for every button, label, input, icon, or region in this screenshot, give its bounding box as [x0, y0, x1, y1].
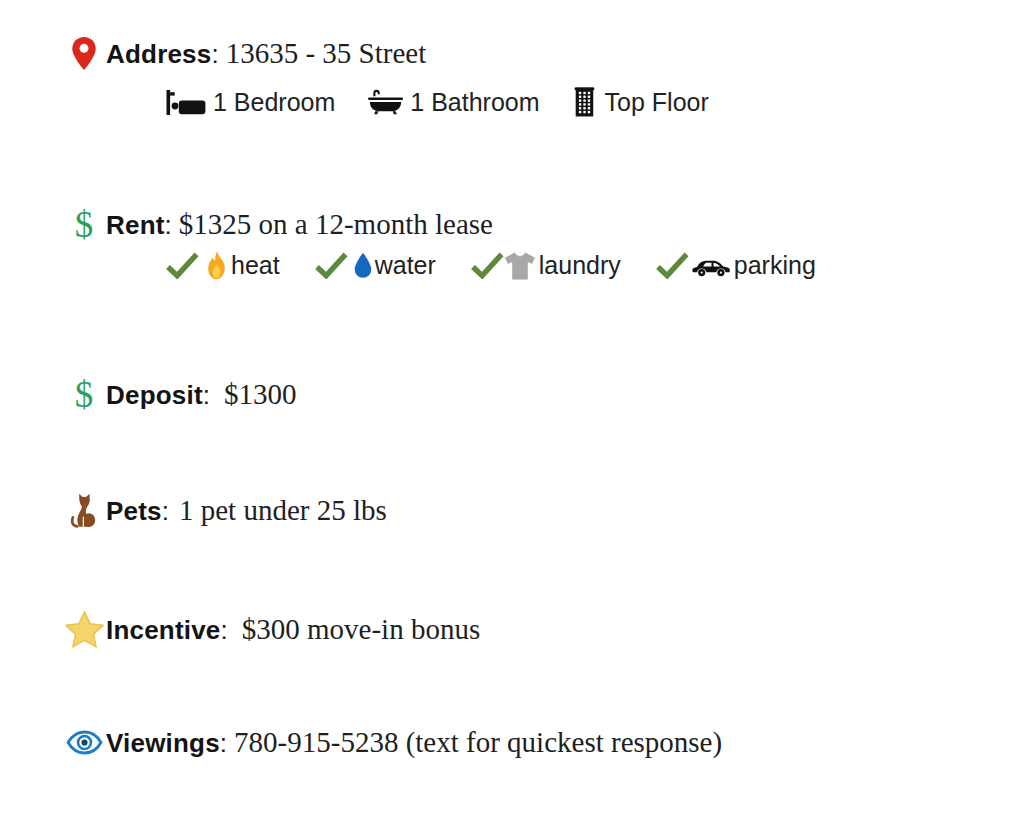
pets-value: 1 pet under 25 lbs [179, 494, 387, 527]
bathroom-detail: 1 Bathroom [367, 88, 539, 117]
viewings-value: 780-915-5238 (text for quickest response… [234, 726, 722, 759]
checkmark-icon [165, 251, 200, 280]
rent-value: $1325 on a 12-month lease [179, 208, 493, 241]
location-pin-icon [62, 36, 106, 71]
floor-text: Top Floor [605, 88, 709, 117]
pets-label: Pets [106, 496, 162, 527]
rent-colon: : [165, 210, 172, 241]
rent-label: Rent [106, 210, 165, 241]
water-feature: water [314, 251, 436, 280]
deposit-colon: : [203, 380, 210, 411]
floor-detail: Top Floor [572, 86, 709, 118]
flame-icon [204, 250, 229, 281]
laundry-feature: laundry [470, 251, 621, 281]
pets-section: Pets: 1 pet under 25 lbs [62, 492, 387, 529]
checkmark-icon [655, 251, 690, 280]
rent-section: $ Rent: $1325 on a 12-month lease [62, 206, 493, 243]
car-icon [690, 254, 732, 278]
address-section: Address: 13635 - 35 Street [62, 36, 426, 71]
address-colon: : [211, 39, 218, 70]
pets-colon: : [162, 496, 169, 527]
incentive-colon: : [221, 615, 228, 646]
eye-icon [62, 730, 106, 755]
incentive-label: Incentive [106, 615, 221, 646]
building-icon [572, 86, 599, 118]
parking-text: parking [734, 251, 816, 280]
address-value: 13635 - 35 Street [226, 37, 427, 70]
heat-text: heat [231, 251, 280, 280]
bedroom-text: 1 Bedroom [213, 88, 335, 117]
bathroom-text: 1 Bathroom [410, 88, 539, 117]
water-text: water [375, 251, 436, 280]
checkmark-icon [470, 251, 505, 280]
address-details-row: 1 Bedroom 1 Bathroom [165, 86, 709, 118]
incentive-section: Incentive: $300 move-in bonus [62, 610, 480, 649]
parking-feature: parking [655, 251, 816, 280]
dollar-icon: $ [62, 376, 106, 413]
checkmark-icon [314, 251, 349, 280]
bed-icon [165, 89, 207, 116]
incentive-value: $300 move-in bonus [242, 613, 480, 646]
deposit-section: $ Deposit: $1300 [62, 376, 296, 413]
bedroom-detail: 1 Bedroom [165, 88, 335, 117]
droplet-icon [353, 252, 373, 279]
rental-listing-flyer: { "separator": ":", "icons": { "dollar_g… [0, 0, 1036, 840]
bathtub-icon [367, 88, 404, 116]
viewings-section: Viewings: 780-915-5238 (text for quickes… [62, 726, 722, 759]
tshirt-icon [503, 251, 537, 281]
laundry-text: laundry [539, 251, 621, 280]
cat-icon [62, 492, 106, 529]
star-icon [62, 610, 106, 649]
deposit-label: Deposit [106, 380, 203, 411]
viewings-label: Viewings [106, 728, 220, 759]
address-label: Address [106, 39, 211, 70]
deposit-value: $1300 [224, 378, 297, 411]
viewings-colon: : [220, 728, 227, 759]
heat-feature: heat [165, 250, 280, 281]
dollar-icon: $ [62, 206, 106, 243]
rent-features-row: heat water laundry [165, 250, 816, 281]
